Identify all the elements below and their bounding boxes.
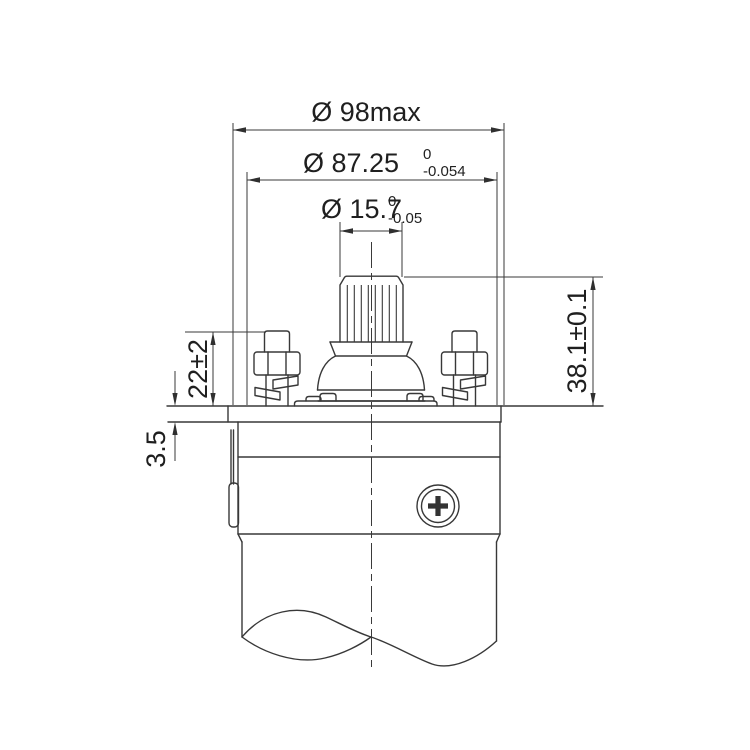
part-bell-housing	[295, 356, 438, 406]
part-terminal-right	[442, 331, 488, 406]
part-mounting-flange	[167, 406, 603, 422]
dim-flange-thickness: 3.5	[141, 371, 178, 468]
phillips-screw	[417, 485, 459, 527]
dim-label-shaft-height: 38.1±0.1	[562, 289, 592, 394]
dim-label-flange-thickness: 3.5	[141, 430, 171, 468]
break-line	[242, 637, 371, 660]
part-terminal-left	[254, 331, 300, 406]
technical-drawing: Ø 98max Ø 87.25 0 -0.054 Ø 15.7 0 -0.05 …	[0, 0, 750, 750]
dim-tol-upper-shaft: 0	[388, 193, 396, 210]
part-body	[229, 422, 500, 534]
side-tab	[229, 483, 239, 527]
part-shaft-tube	[238, 534, 500, 666]
dim-tol-lower-flange: -0.054	[423, 163, 466, 180]
dim-overall-diameter: Ø 98max	[233, 97, 504, 405]
dim-label-flange-diameter: Ø 87.25	[303, 148, 399, 178]
dim-label-terminal-height: 22±2	[183, 339, 213, 399]
drawing-canvas: Ø 98max Ø 87.25 0 -0.054 Ø 15.7 0 -0.05 …	[0, 0, 750, 750]
dim-tol-upper-flange: 0	[423, 146, 431, 163]
dim-tol-lower-shaft: -0.05	[388, 210, 422, 227]
dim-label-overall-diameter: Ø 98max	[311, 97, 421, 127]
